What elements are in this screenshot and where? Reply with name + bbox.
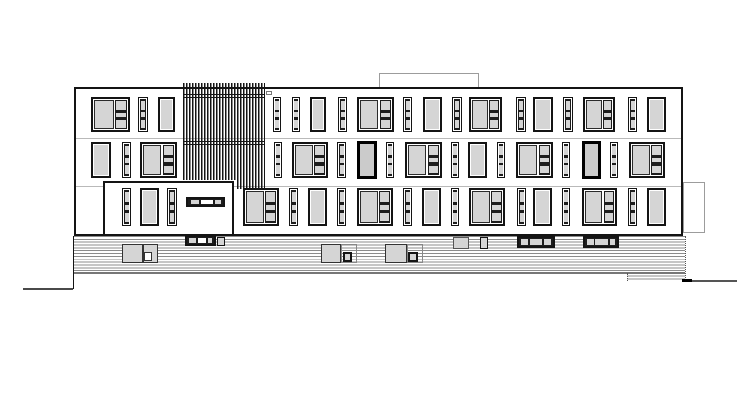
window-pane [453, 146, 456, 155]
window-pane [564, 146, 567, 155]
window-narrow [403, 97, 412, 132]
floor-line-upper [76, 138, 681, 139]
window-side-sash [539, 145, 550, 176]
window-pane [406, 213, 410, 222]
window-side-sash [604, 191, 615, 224]
window-narrow-sash [630, 190, 635, 224]
window-pane [381, 101, 390, 110]
base-bottom-line [73, 272, 685, 274]
window-pane [294, 101, 297, 110]
window-plain [91, 142, 111, 178]
window-narrow-sash [564, 144, 568, 176]
window-pane [429, 146, 438, 155]
window-pane [125, 158, 129, 163]
window-narrow [403, 188, 412, 226]
window-narrow-sash [405, 99, 410, 130]
window-glass-panel [246, 191, 264, 222]
window-pane [275, 120, 278, 128]
window-pane [116, 120, 126, 128]
window-plain [533, 188, 552, 226]
window-narrow [167, 188, 177, 226]
window-narrow [497, 142, 505, 178]
strip-pane [610, 239, 616, 245]
window-plain [647, 97, 666, 132]
strip-pane [201, 200, 213, 205]
window-pane [340, 213, 344, 222]
window-side-sash [265, 191, 276, 224]
window-plain [158, 97, 175, 132]
strip-pane [521, 239, 528, 245]
window-narrow-sash [519, 190, 524, 224]
strip-pane [208, 238, 212, 243]
window-narrow-sash [565, 99, 571, 130]
base-ribbon-endcap [217, 237, 225, 246]
window-pane [631, 120, 635, 128]
window-narrow-sash [340, 99, 345, 130]
window-composite [243, 188, 279, 226]
lower-left-wall [73, 236, 75, 289]
basement-window-inset [408, 252, 418, 262]
basement-window [122, 244, 143, 263]
strip-pane [189, 238, 196, 243]
window-pane [540, 166, 549, 174]
window-side-sash [115, 100, 127, 130]
window-pane [564, 205, 567, 210]
window-narrow-sash [276, 144, 280, 176]
window-composite [357, 188, 393, 226]
window-pane [453, 165, 456, 174]
window-pane [652, 158, 661, 162]
window-pane [455, 112, 460, 117]
window-narrow-sash [564, 190, 568, 224]
window-narrow-sash [630, 99, 635, 130]
window-pane [380, 192, 389, 202]
window-narrow [628, 97, 637, 132]
strip-pane [215, 200, 220, 205]
window-glass-panel [360, 191, 378, 222]
window-pane [388, 158, 391, 163]
louver-screen [183, 83, 265, 180]
window-narrow [138, 97, 148, 132]
window-side-sash [428, 145, 439, 176]
window-thick-frame [357, 141, 377, 179]
roof-structure-outline [379, 73, 479, 88]
window-narrow [292, 97, 300, 132]
window-pane [164, 166, 173, 174]
window-plain [423, 97, 442, 132]
window-pane [453, 192, 456, 202]
window-pane [341, 112, 345, 117]
window-narrow [273, 97, 281, 132]
window-composite [582, 188, 617, 226]
window-side-sash [379, 191, 390, 224]
window-pane [116, 113, 126, 117]
window-pane [406, 112, 410, 117]
window-pane [455, 101, 460, 110]
window-thick-frame [582, 141, 601, 179]
window-pane [276, 146, 279, 155]
window-composite [469, 188, 505, 226]
window-pane [340, 165, 344, 174]
window-pane [266, 205, 275, 209]
window-narrow-sash [339, 190, 344, 224]
window-pane [340, 205, 344, 210]
elevation-canvas [0, 0, 755, 412]
window-pane [631, 101, 635, 110]
louver-rail [183, 97, 265, 98]
window-pane [519, 101, 524, 110]
window-narrow-sash [454, 99, 460, 130]
window-pane [429, 166, 438, 174]
basement-window-inset [343, 252, 352, 262]
ground-line-left [23, 288, 73, 290]
window-pane [605, 205, 613, 209]
louver-rail [183, 141, 265, 142]
window-narrow-sash [291, 190, 296, 224]
base-right-edge [685, 236, 686, 280]
window-plain [308, 188, 327, 226]
window-narrow [563, 97, 573, 132]
louver-screen-extension [237, 180, 265, 189]
window-pane [612, 165, 615, 174]
window-narrow-sash [453, 190, 457, 224]
window-side-sash [603, 100, 613, 130]
window-narrow [337, 188, 346, 226]
window-pane [315, 158, 324, 162]
window-pane [564, 213, 567, 222]
window-narrow-sash [169, 190, 175, 224]
window-pane [631, 205, 635, 210]
window-narrow-sash [612, 144, 616, 176]
window-pane [499, 146, 502, 155]
base-step-edge [627, 273, 628, 281]
window-pane [388, 165, 391, 174]
window-pane [566, 101, 571, 110]
window-pane [341, 101, 345, 110]
window-pane [631, 112, 635, 117]
window-glass-panel [472, 100, 488, 129]
window-composite [583, 97, 615, 132]
window-composite [629, 142, 665, 178]
window-glass-panel [632, 145, 650, 174]
strip-pane [191, 200, 199, 205]
window-pane [492, 205, 501, 209]
window-pane [453, 205, 456, 210]
window-pane [453, 213, 456, 222]
entrance-ribbon-window [186, 197, 225, 207]
window-composite [405, 142, 442, 178]
window-pane [292, 192, 296, 202]
window-pane [564, 158, 567, 163]
strip-pane [587, 239, 594, 245]
window-pane [540, 158, 549, 162]
window-pane [315, 166, 324, 174]
window-pane [381, 120, 390, 128]
window-pane [631, 213, 635, 222]
window-glass-panel [143, 145, 161, 174]
strip-pane [530, 239, 542, 245]
window-pane [406, 205, 410, 210]
window-pane [141, 112, 146, 117]
window-composite [357, 97, 394, 132]
window-pane [275, 112, 278, 117]
base-cladding-step [627, 273, 685, 281]
window-plain [310, 97, 326, 132]
window-pane [429, 158, 438, 162]
window-pane [499, 158, 502, 163]
window-glass-panel [519, 145, 537, 174]
window-pane [631, 192, 635, 202]
vent-strip [583, 236, 619, 248]
window-pane [519, 112, 524, 117]
window-composite [469, 97, 502, 132]
window-pane [276, 158, 279, 163]
vent-window [453, 237, 469, 249]
window-pane [292, 213, 296, 222]
window-glass-panel [360, 100, 378, 129]
window-pane [455, 120, 460, 128]
basement-window [385, 244, 407, 263]
window-pane [276, 165, 279, 174]
window-pane [492, 192, 501, 202]
window-pane [266, 213, 275, 221]
window-pane [266, 192, 275, 202]
window-pane [652, 166, 661, 174]
window-pane [380, 205, 389, 209]
window-narrow [452, 97, 462, 132]
window-pane [540, 146, 549, 155]
window-pane [520, 213, 524, 222]
window-side-sash [651, 145, 662, 176]
window-narrow [562, 188, 570, 226]
vent-strip [517, 236, 555, 248]
window-pane [566, 112, 571, 117]
window-pane [141, 101, 146, 110]
window-composite [516, 142, 553, 178]
window-pane [315, 146, 324, 155]
window-narrow-sash [124, 190, 129, 224]
window-narrow [338, 97, 347, 132]
strip-pane [544, 239, 551, 245]
base-ribbon-window [185, 235, 216, 246]
window-glass-panel [586, 100, 602, 129]
window-plain [422, 188, 441, 226]
window-pane [604, 120, 612, 128]
window-pane [340, 158, 344, 163]
window-composite [292, 142, 328, 178]
window-pane [170, 213, 175, 222]
window-pane [490, 101, 498, 110]
window-narrow-sash [499, 144, 503, 176]
window-pane [125, 192, 129, 202]
window-pane [453, 158, 456, 163]
window-pane [164, 158, 173, 162]
window-pane [605, 213, 613, 221]
window-pane [294, 112, 297, 117]
window-pane [380, 213, 389, 221]
window-narrow-sash [388, 144, 392, 176]
louver-rail [183, 94, 265, 95]
window-narrow-sash [294, 99, 298, 130]
window-narrow-sash [140, 99, 146, 130]
window-side-sash [491, 191, 502, 224]
window-plain [647, 188, 666, 226]
window-pane [125, 205, 129, 210]
window-pane [141, 120, 146, 128]
window-glass-panel [94, 100, 114, 129]
window-pane [406, 192, 410, 202]
louver-rail [183, 144, 265, 145]
window-pane [125, 165, 129, 174]
window-narrow [516, 97, 526, 132]
window-narrow-sash [405, 190, 410, 224]
window-pane [490, 113, 498, 117]
window-side-sash [380, 100, 391, 130]
window-pane [294, 120, 297, 128]
window-pane [612, 146, 615, 155]
window-narrow [274, 142, 282, 178]
window-narrow-sash [339, 144, 344, 176]
window-glass-panel [585, 191, 602, 222]
window-narrow-sash [518, 99, 524, 130]
window-pane [340, 146, 344, 155]
vent-window [480, 237, 488, 249]
window-pane [604, 113, 612, 117]
window-pane [490, 120, 498, 128]
window-narrow [628, 188, 637, 226]
window-plain [533, 97, 553, 132]
window-narrow [451, 142, 459, 178]
window-composite [91, 97, 130, 132]
window-pane [652, 146, 661, 155]
window-narrow [122, 188, 131, 226]
window-pane [406, 101, 410, 110]
window-glass-panel [408, 145, 426, 174]
window-pane [170, 205, 175, 210]
window-side-sash [163, 145, 174, 176]
window-pane [406, 120, 410, 128]
window-pane [604, 101, 612, 110]
window-glass-panel [472, 191, 490, 222]
window-narrow [451, 188, 459, 226]
window-pane [519, 120, 524, 128]
window-pane [499, 165, 502, 174]
window-pane [566, 120, 571, 128]
window-pane [612, 158, 615, 163]
window-narrow [610, 142, 618, 178]
window-side-sash [489, 100, 499, 130]
window-narrow [289, 188, 298, 226]
window-pane [605, 192, 613, 202]
window-narrow [517, 188, 526, 226]
window-pane [125, 213, 129, 222]
basement-window [321, 244, 341, 263]
window-pane [388, 146, 391, 155]
window-pane [170, 192, 175, 202]
window-side-sash [314, 145, 325, 176]
window-narrow-sash [124, 144, 129, 176]
window-pane [341, 120, 345, 128]
window-pane [520, 205, 524, 210]
window-narrow-sash [275, 99, 279, 130]
louver-cap [266, 91, 273, 96]
window-narrow-sash [453, 144, 457, 176]
strip-pane [595, 239, 608, 245]
ground-line-right-accent [682, 279, 692, 282]
strip-pane [198, 238, 206, 243]
window-pane [116, 101, 126, 110]
window-plain [468, 142, 487, 178]
window-pane [125, 146, 129, 155]
window-pane [520, 192, 524, 202]
side-annex-outline [683, 182, 705, 233]
window-narrow [122, 142, 131, 178]
basement-window-inset [144, 252, 152, 261]
window-pane [381, 113, 390, 117]
window-narrow [386, 142, 394, 178]
window-pane [564, 192, 567, 202]
window-pane [164, 146, 173, 155]
window-pane [564, 165, 567, 174]
window-narrow [562, 142, 570, 178]
window-pane [340, 192, 344, 202]
window-glass-panel [295, 145, 313, 174]
window-pane [292, 205, 296, 210]
window-pane [275, 101, 278, 110]
window-pane [492, 213, 501, 221]
window-narrow [337, 142, 346, 178]
window-composite [140, 142, 177, 178]
window-plain [140, 188, 159, 226]
